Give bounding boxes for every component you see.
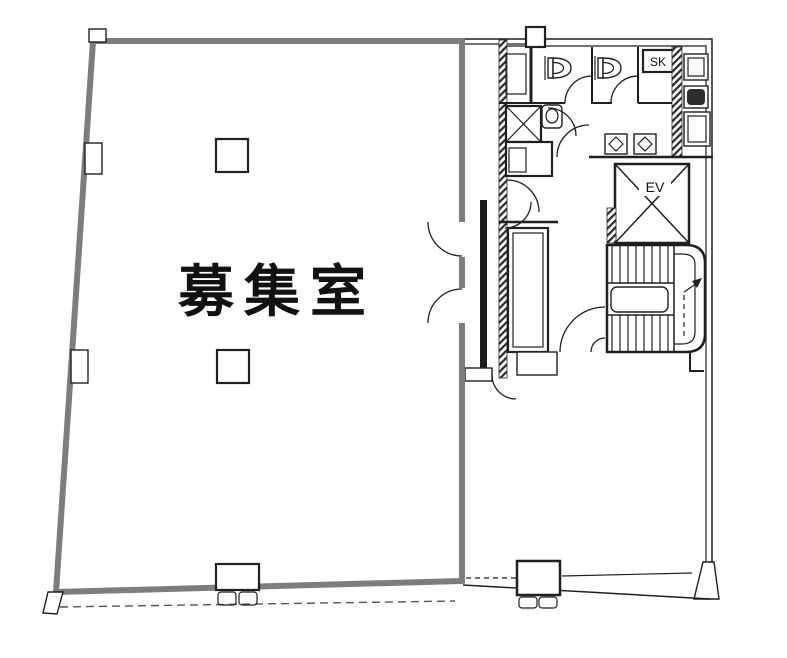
staircase xyxy=(560,245,705,352)
stair-door-arc xyxy=(560,307,605,352)
main-room: 募集室 xyxy=(43,29,468,614)
duct-space xyxy=(506,54,526,94)
elevator-label: EV xyxy=(646,179,665,195)
sk-label: SK xyxy=(650,55,666,69)
vent-grille xyxy=(519,597,537,608)
floor-plan-drawing: SK EV xyxy=(0,0,787,658)
urinal-back xyxy=(598,58,603,78)
shaft-box-2-hatch-cover xyxy=(687,89,705,105)
closet-room xyxy=(506,142,552,176)
urinal-back xyxy=(548,58,553,78)
column-bottom-wall xyxy=(216,564,259,590)
closet-door-arc xyxy=(507,180,539,212)
window-sill-line xyxy=(562,573,692,576)
common-area-step-wall xyxy=(690,352,704,371)
elevator-hatched-wall xyxy=(607,208,616,243)
corridor-top-door-arc xyxy=(505,202,531,228)
door-opening-2 xyxy=(456,288,468,323)
stair-landing xyxy=(611,287,668,312)
urinal-1 xyxy=(545,56,571,80)
bottom-edge xyxy=(463,585,710,599)
common-area xyxy=(466,352,704,608)
urinal-bowl xyxy=(603,58,621,78)
floor-plan-page: SK EV xyxy=(0,0,787,658)
toilet-east-hatched-wall xyxy=(672,47,682,157)
stall-door-arc-1 xyxy=(565,76,592,103)
duct-chase-outer xyxy=(508,228,548,352)
wall-pilaster-1 xyxy=(85,143,102,174)
elevator: EV xyxy=(607,164,689,243)
room-column-1 xyxy=(216,139,248,172)
corridor-end-wall-nib xyxy=(465,368,492,381)
shaft-and-closet xyxy=(499,106,558,375)
room-column-2 xyxy=(217,350,249,383)
step-wall-block xyxy=(517,352,557,375)
vent-grille xyxy=(239,592,257,605)
main-room-label: 募集室 xyxy=(177,260,376,323)
urinal-2 xyxy=(595,56,621,80)
corridor-dark-wall xyxy=(480,200,487,378)
corner-cap xyxy=(89,29,106,42)
wall-foot-bottom-right xyxy=(694,562,719,599)
vent-grille xyxy=(218,592,236,605)
vent-grille xyxy=(539,597,557,608)
column-bottom-center xyxy=(517,561,560,595)
stall-door-arc-2 xyxy=(611,76,638,103)
toilet-lobby-door-arc xyxy=(557,125,589,157)
wall-foot-bottom-left xyxy=(43,592,63,614)
urinal-bowl xyxy=(553,58,571,78)
corridor-exit-door-arc xyxy=(492,375,516,399)
stair-door-leaf-arc xyxy=(591,338,605,352)
door-opening-1 xyxy=(456,222,468,257)
top-wall-column xyxy=(526,27,545,47)
wall-pilaster-2 xyxy=(71,350,88,383)
